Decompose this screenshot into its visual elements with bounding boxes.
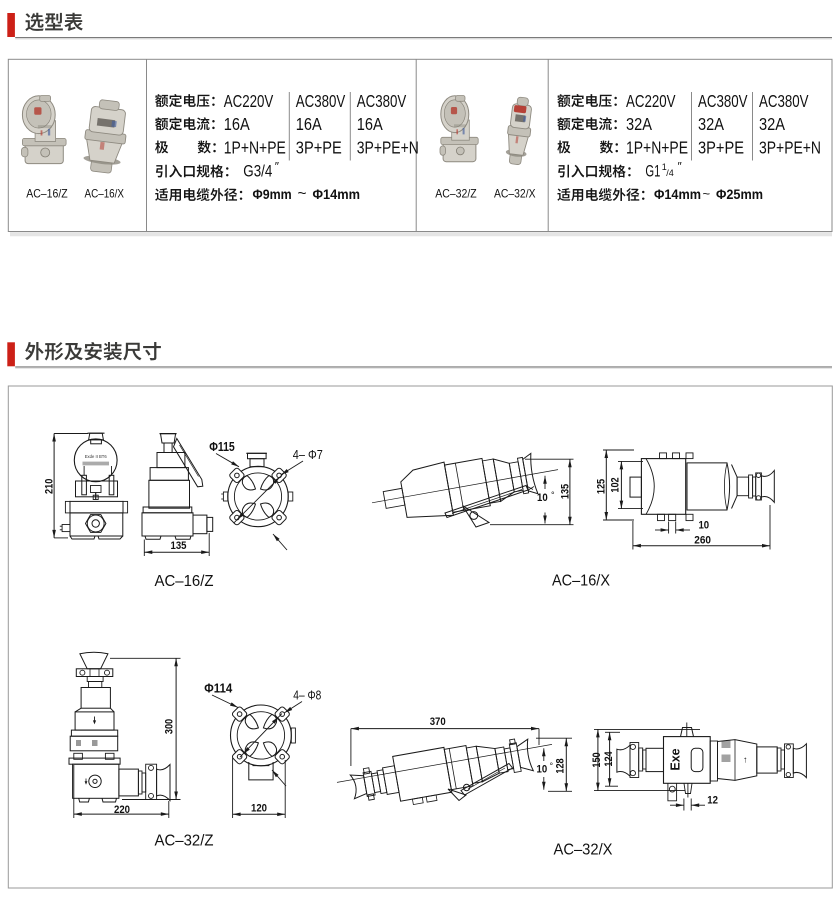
svg-text:135: 135 <box>559 484 571 499</box>
svg-text:AC–32/X: AC–32/X <box>554 842 613 859</box>
svg-text:Φ14mm: Φ14mm <box>654 187 701 202</box>
svg-text:102: 102 <box>610 477 622 492</box>
svg-text:AC380V: AC380V <box>759 91 809 111</box>
svg-text:AC–32/Z: AC–32/Z <box>435 187 477 201</box>
svg-text:Φ115: Φ115 <box>209 440 235 454</box>
svg-text:220: 220 <box>114 804 130 816</box>
svg-text:AC–16/X: AC–16/X <box>552 573 610 590</box>
svg-text:1P+N+PE: 1P+N+PE <box>626 137 688 157</box>
svg-text:150: 150 <box>591 752 603 767</box>
svg-text:3P+PE: 3P+PE <box>698 137 744 157</box>
svg-text:Φ9mm: Φ9mm <box>253 187 292 202</box>
svg-text:210: 210 <box>43 479 55 494</box>
svg-text:3P+PE+N: 3P+PE+N <box>759 137 821 157</box>
svg-text:AC220V: AC220V <box>626 91 676 111</box>
svg-text:Φ25mm: Φ25mm <box>716 187 763 202</box>
svg-text:G1: G1 <box>645 162 660 180</box>
svg-text:32A: 32A <box>698 114 724 134</box>
svg-text:4– Φ8: 4– Φ8 <box>293 688 321 702</box>
svg-text:16A: 16A <box>296 114 322 134</box>
svg-text:128: 128 <box>554 758 566 773</box>
svg-text:12: 12 <box>707 795 718 807</box>
svg-text:°: ° <box>550 761 554 771</box>
svg-text:125: 125 <box>595 479 607 494</box>
svg-text:120: 120 <box>251 803 267 815</box>
svg-text:16A: 16A <box>224 114 250 134</box>
svg-text:~: ~ <box>703 186 711 201</box>
svg-text:Exe: Exe <box>669 748 683 770</box>
svg-text:10: 10 <box>537 492 548 504</box>
svg-text:~: ~ <box>298 186 307 203</box>
svg-text:AC220V: AC220V <box>224 91 274 111</box>
svg-text:370: 370 <box>430 716 446 728</box>
svg-text:AC–16/Z: AC–16/Z <box>26 187 67 201</box>
svg-text:AC–32/X: AC–32/X <box>494 187 536 201</box>
svg-text:300: 300 <box>164 719 176 734</box>
svg-text:3P+PE+N: 3P+PE+N <box>357 137 419 157</box>
svg-text:↑: ↑ <box>743 755 748 765</box>
svg-text:4– Φ7: 4– Φ7 <box>293 448 323 462</box>
svg-text:135: 135 <box>171 540 187 552</box>
svg-text:Exde II BT6: Exde II BT6 <box>85 454 107 459</box>
svg-text:/4: /4 <box>666 168 674 178</box>
svg-text:10: 10 <box>698 520 709 532</box>
svg-text:AC–32/Z: AC–32/Z <box>155 833 214 850</box>
svg-text:AC380V: AC380V <box>296 91 346 111</box>
svg-text:124: 124 <box>603 751 615 767</box>
svg-text:AC380V: AC380V <box>698 91 748 111</box>
svg-text:3P+PE: 3P+PE <box>296 137 342 157</box>
svg-text:AC380V: AC380V <box>357 91 407 111</box>
svg-text:AC–16/Z: AC–16/Z <box>155 573 214 590</box>
svg-text:°: ° <box>551 490 555 500</box>
svg-text:260: 260 <box>694 535 711 547</box>
svg-text:Φ14mm: Φ14mm <box>313 187 361 202</box>
svg-text:G3/4: G3/4 <box>243 162 272 180</box>
svg-text:Φ114: Φ114 <box>204 681 232 695</box>
svg-text:32A: 32A <box>626 114 652 134</box>
svg-text:16A: 16A <box>357 114 383 134</box>
svg-text:1P+N+PE: 1P+N+PE <box>224 137 286 157</box>
svg-text:″: ″ <box>275 160 280 174</box>
svg-text:32A: 32A <box>759 114 785 134</box>
svg-text:10: 10 <box>537 764 548 776</box>
svg-text:AC–16/X: AC–16/X <box>85 187 125 201</box>
